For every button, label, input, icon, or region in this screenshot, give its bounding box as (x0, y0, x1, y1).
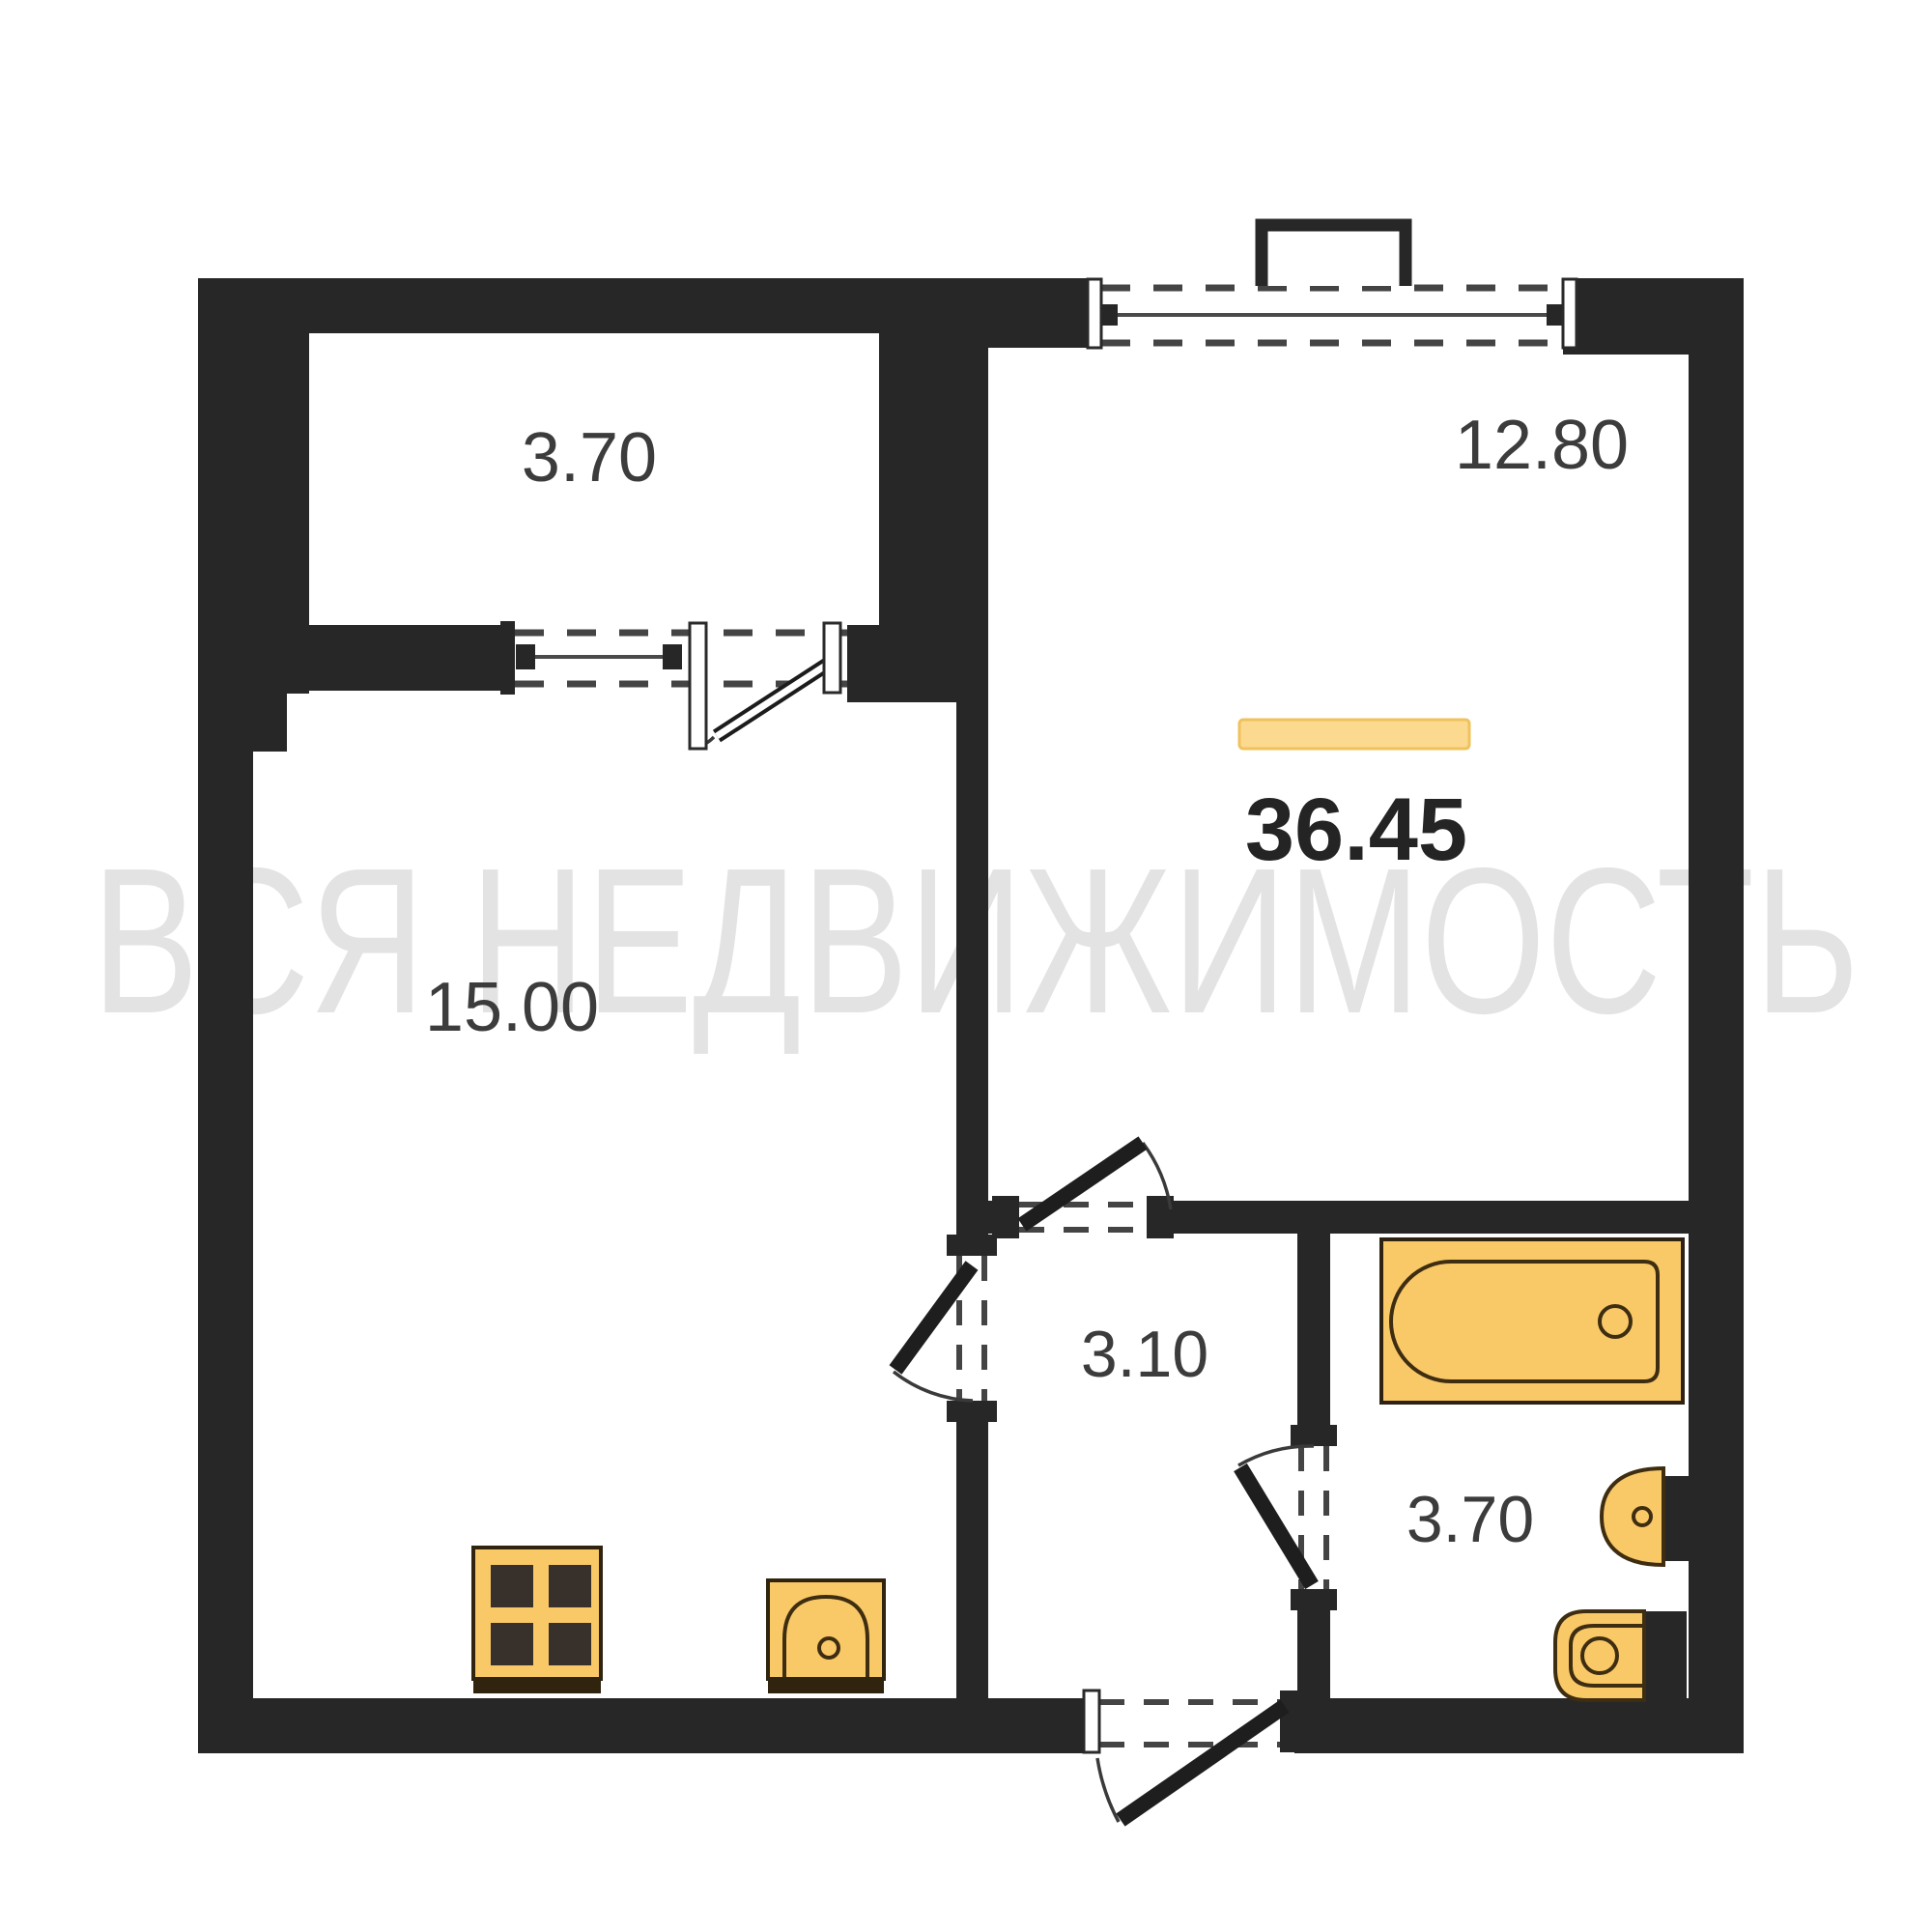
door-jamb (824, 623, 840, 693)
floor-plan-page: ВСЯ НЕДВИЖИМОСТЬ (0, 0, 1932, 1932)
hallway-area-label: 3.10 (1081, 1318, 1208, 1391)
entrance-door-arc (1097, 1758, 1119, 1822)
window-jamb (1088, 279, 1101, 348)
total-area-highlight-bar (1239, 720, 1469, 749)
total-area-value: 36.45 (1245, 781, 1467, 879)
vent-shaft (1262, 225, 1406, 286)
toilet-icon (1555, 1611, 1687, 1700)
bathtub-icon (1381, 1239, 1683, 1403)
kitchen-sink-icon (768, 1580, 884, 1693)
window-jamb (1563, 279, 1577, 348)
living-room-door-leaf (1022, 1143, 1143, 1225)
balcony-door-leaf (717, 665, 827, 736)
bathroom-sink-icon (1602, 1468, 1689, 1565)
floor-plan: ВСЯ НЕДВИЖИМОСТЬ (0, 0, 1932, 1932)
door-jamb (1084, 1690, 1099, 1752)
entrance-door-leaf (1121, 1706, 1285, 1820)
bathroom-area-label: 3.70 (1406, 1483, 1534, 1556)
total-area: 36.45 (1239, 720, 1469, 879)
door-jamb (690, 623, 706, 749)
balcony-area-label: 3.70 (522, 419, 657, 497)
kitchen-living-area-label: 15.00 (425, 969, 599, 1046)
living-room-area-label: 12.80 (1455, 407, 1629, 484)
fixtures (473, 1239, 1689, 1700)
stove-icon (473, 1548, 601, 1693)
bathroom-door-leaf (1240, 1467, 1312, 1585)
